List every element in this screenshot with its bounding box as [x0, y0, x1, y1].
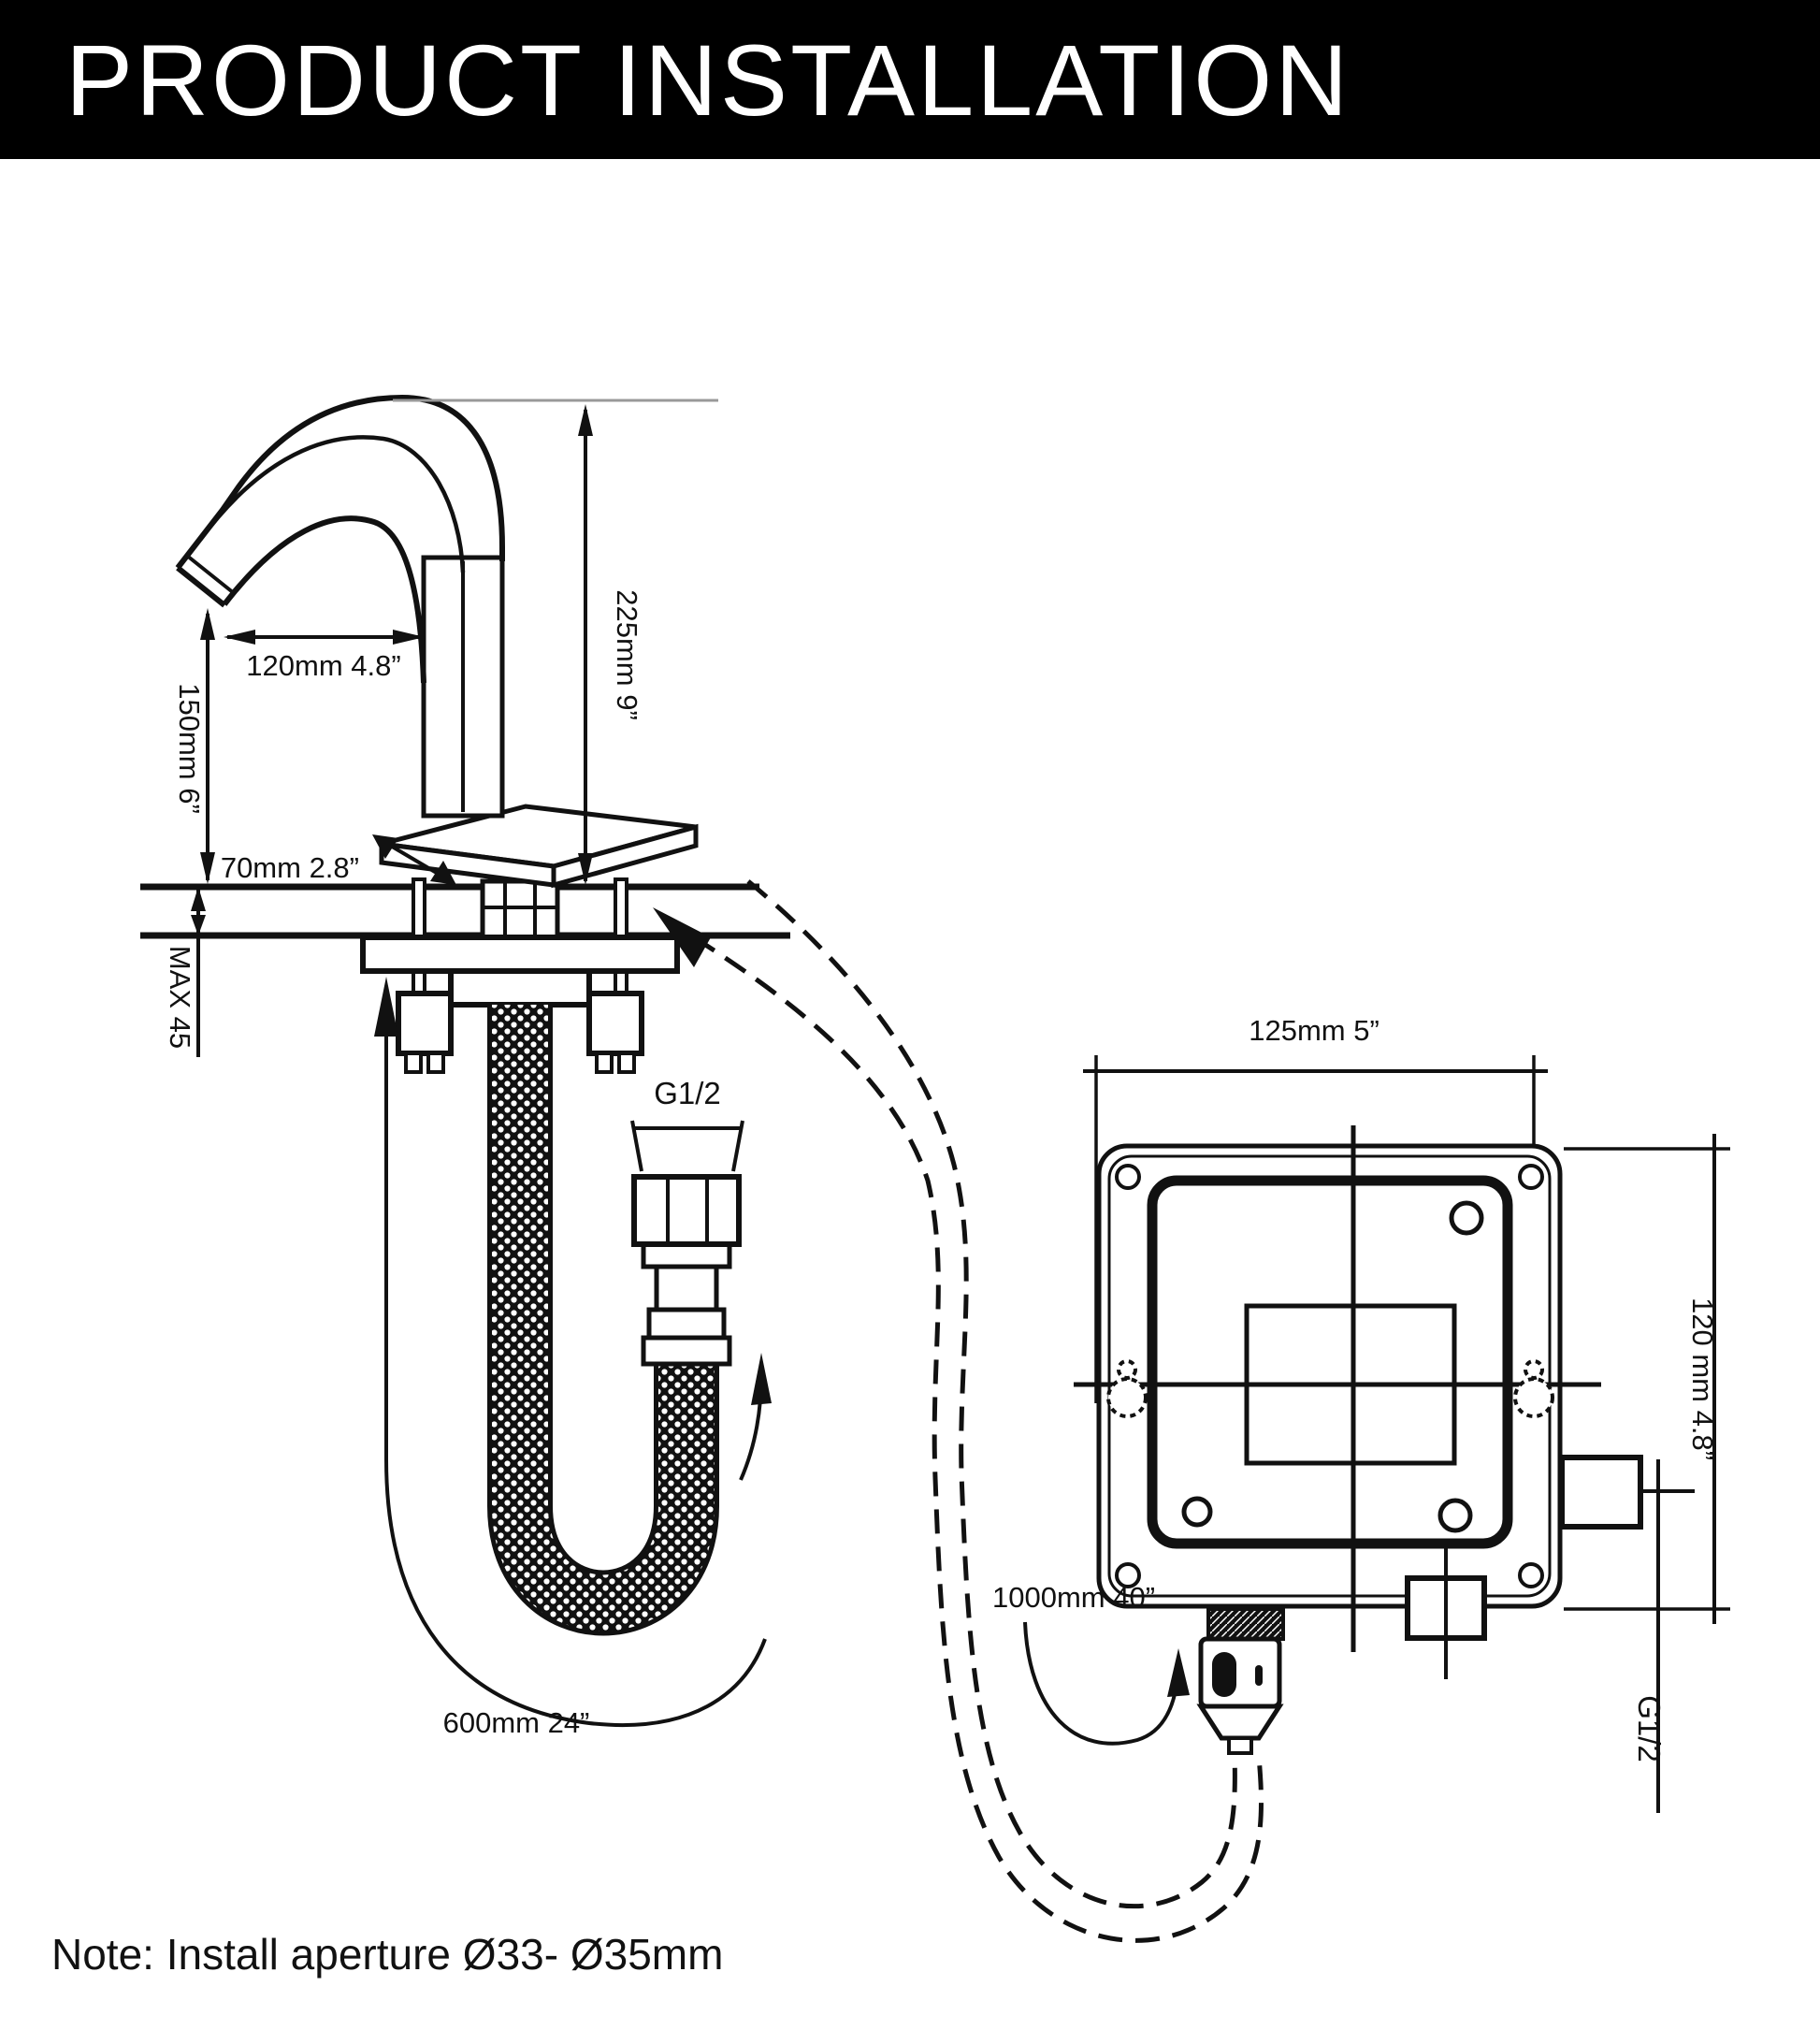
- dim-hose-thread: [632, 1121, 743, 1171]
- dim-box-height-label: 120 mm 4.8”: [1686, 1298, 1719, 1460]
- up-arrow-icon: [1167, 1648, 1190, 1697]
- faucet-base-plate: [382, 806, 696, 885]
- sensor-plug: [1201, 1609, 1283, 1753]
- keyhole-slot-icon: [1108, 1361, 1553, 1416]
- sensor-cable: [694, 881, 1262, 1940]
- spout-outlet-face: [178, 568, 224, 605]
- screw-icon: [1117, 1166, 1139, 1188]
- installation-sheet: PRODUCT INSTALLATION: [0, 0, 1820, 2030]
- up-arrow-icon: [374, 977, 398, 1037]
- plug-connect-arrow: [1025, 1622, 1190, 1744]
- screw-icon: [1520, 1166, 1542, 1188]
- dim-hose-length-label: 600mm 24”: [443, 1706, 590, 1739]
- dim-base-width-label: 70mm 2.8”: [221, 851, 359, 884]
- hose-hex-nut: [634, 1177, 739, 1244]
- dim-spout-reach-label: 120mm 4.8”: [246, 649, 400, 682]
- dim-spout-reach: [224, 630, 425, 645]
- page-title: PRODUCT INSTALLATION: [0, 22, 1351, 138]
- install-note: Note: Install aperture Ø33- Ø35mm: [51, 1929, 723, 1979]
- control-box: [1074, 1125, 1695, 1679]
- plug-knurled-nut: [1208, 1609, 1283, 1639]
- screw-icon: [1184, 1499, 1210, 1525]
- page-header: PRODUCT INSTALLATION: [0, 0, 1820, 159]
- plug-window: [1212, 1652, 1236, 1697]
- lock-nut: [451, 971, 589, 1005]
- dim-outlet-height-label: 150mm 6”: [173, 683, 206, 814]
- dim-box-width-label: 125mm 5”: [1249, 1014, 1379, 1047]
- screw-icon: [1440, 1501, 1470, 1530]
- dim-outlet-thread-label: G1/2: [1632, 1695, 1667, 1762]
- screw-icon: [1452, 1203, 1481, 1233]
- hose-up-arrow: [741, 1353, 772, 1480]
- faucet-column: [424, 558, 502, 816]
- hose-fitting: [634, 1177, 739, 1364]
- faucet-shank: [483, 881, 557, 939]
- mounting-bracket: [363, 937, 677, 971]
- dim-hose-thread-label: G1/2: [654, 1076, 721, 1110]
- screw-icon: [1520, 1564, 1542, 1587]
- dim-counter-thickness-label: MAX 45: [164, 946, 196, 1049]
- up-arrow-icon: [751, 1353, 772, 1405]
- box-outlet-pipe: [1562, 1457, 1640, 1527]
- installation-diagram: G1/2 600mm 24”: [0, 0, 1820, 2030]
- dim-spout-height-label: 225mm 9”: [611, 589, 643, 720]
